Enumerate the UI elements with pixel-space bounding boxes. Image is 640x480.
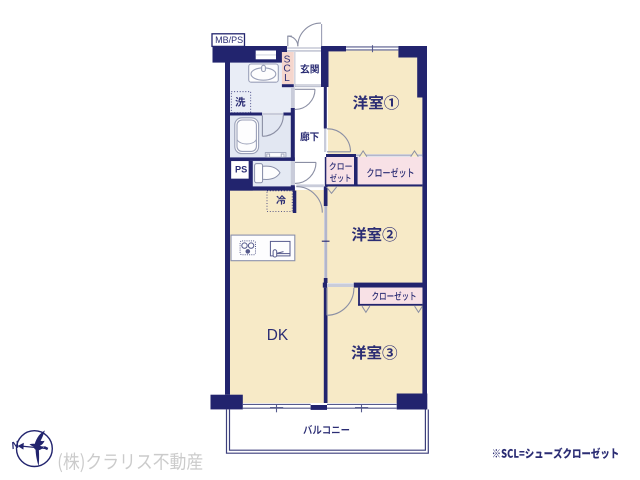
svg-text:DK: DK [267, 327, 289, 344]
svg-text:L: L [284, 73, 290, 84]
svg-text:PS: PS [235, 165, 247, 175]
svg-text:MB/PS: MB/PS [215, 35, 243, 45]
